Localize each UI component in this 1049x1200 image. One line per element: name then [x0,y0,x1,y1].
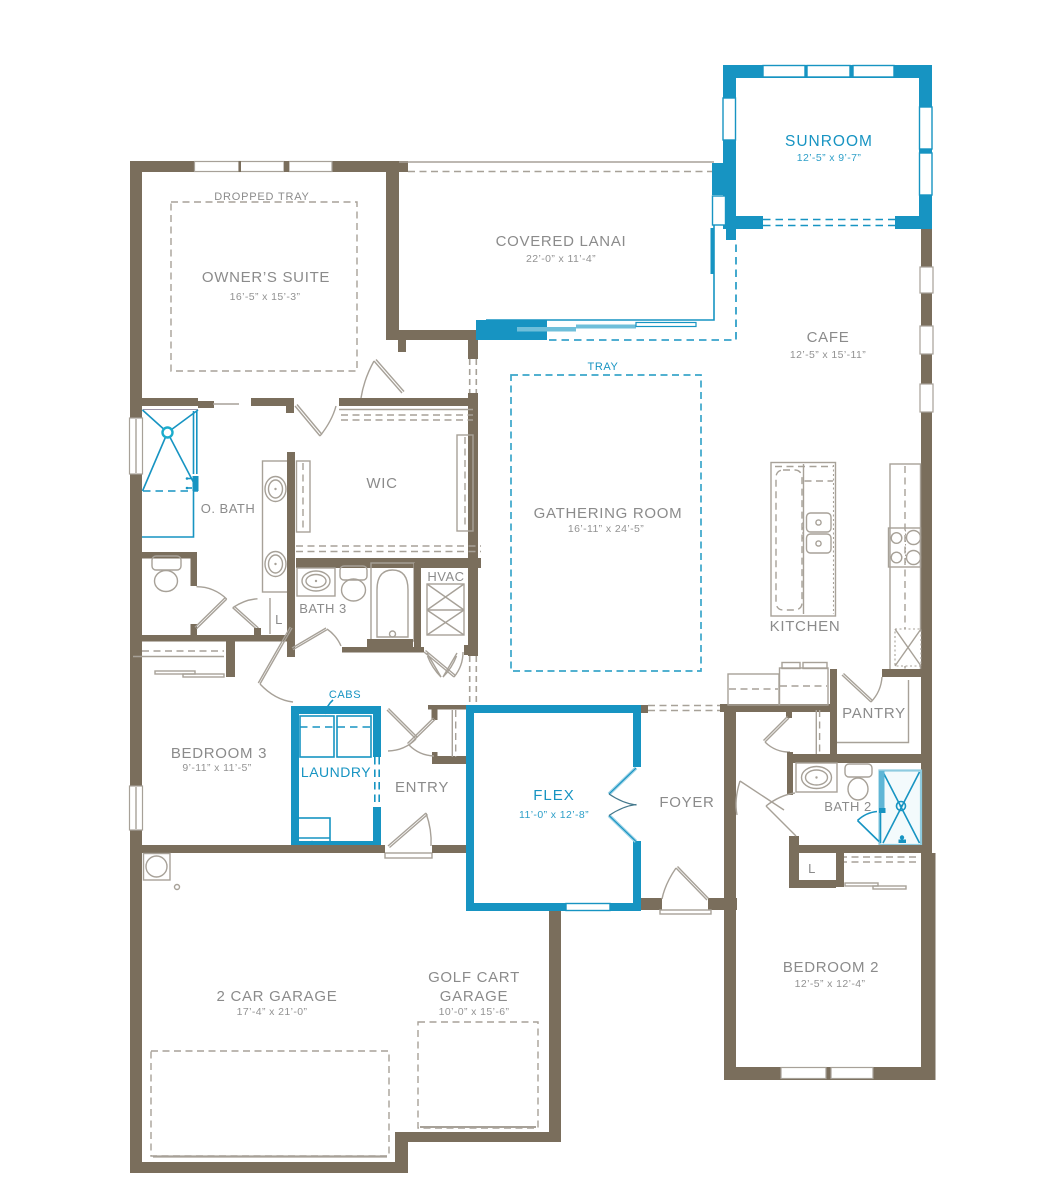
svg-text:O. BATH: O. BATH [201,501,256,516]
svg-text:CAFE: CAFE [807,329,850,346]
svg-text:KITCHEN: KITCHEN [770,618,841,635]
svg-text:BATH 3: BATH 3 [299,601,347,616]
svg-text:COVERED LANAI: COVERED LANAI [496,233,627,250]
svg-text:HVAC: HVAC [427,569,464,584]
svg-text:TRAY: TRAY [588,361,619,373]
svg-text:10’-0” x 15’-6”: 10’-0” x 15’-6” [439,1006,510,1018]
svg-text:17’-4” x 21’-0”: 17’-4” x 21’-0” [237,1006,308,1018]
svg-text:GOLF CART: GOLF CART [428,969,520,986]
svg-text:2 CAR GARAGE: 2 CAR GARAGE [217,988,338,1005]
svg-text:PANTRY: PANTRY [842,705,906,722]
svg-text:GARAGE: GARAGE [440,988,508,1005]
svg-text:ENTRY: ENTRY [395,779,449,796]
svg-text:11’-0” x 12’-8”: 11’-0” x 12’-8” [519,809,589,821]
svg-text:12’-5” x 9’-7”: 12’-5” x 9’-7” [797,152,862,164]
svg-text:SUNROOM: SUNROOM [785,133,873,150]
svg-text:BEDROOM 3: BEDROOM 3 [171,745,267,762]
svg-text:L: L [808,861,816,876]
svg-text:9’-11” x 11’-5”: 9’-11” x 11’-5” [182,762,251,774]
svg-text:WIC: WIC [366,475,397,492]
svg-text:FLEX: FLEX [533,787,575,804]
svg-text:GATHERING ROOM: GATHERING ROOM [534,505,683,522]
svg-text:OWNER’S SUITE: OWNER’S SUITE [202,269,330,286]
svg-text:22’-0” x 11’-4”: 22’-0” x 11’-4” [526,253,596,265]
svg-text:BEDROOM 2: BEDROOM 2 [783,959,879,976]
svg-text:16’-11” x 24’-5”: 16’-11” x 24’-5” [568,523,644,535]
svg-text:DROPPED TRAY: DROPPED TRAY [214,191,309,203]
svg-text:12’-5” x 15’-11”: 12’-5” x 15’-11” [790,349,866,361]
svg-text:L: L [275,612,283,627]
svg-text:LAUNDRY: LAUNDRY [301,764,371,780]
svg-text:FOYER: FOYER [659,794,714,811]
svg-text:16’-5” x 15’-3”: 16’-5” x 15’-3” [230,291,301,303]
svg-text:BATH 2: BATH 2 [824,799,872,814]
svg-text:12’-5” x 12’-4”: 12’-5” x 12’-4” [795,978,866,990]
svg-text:CABS: CABS [329,689,361,701]
